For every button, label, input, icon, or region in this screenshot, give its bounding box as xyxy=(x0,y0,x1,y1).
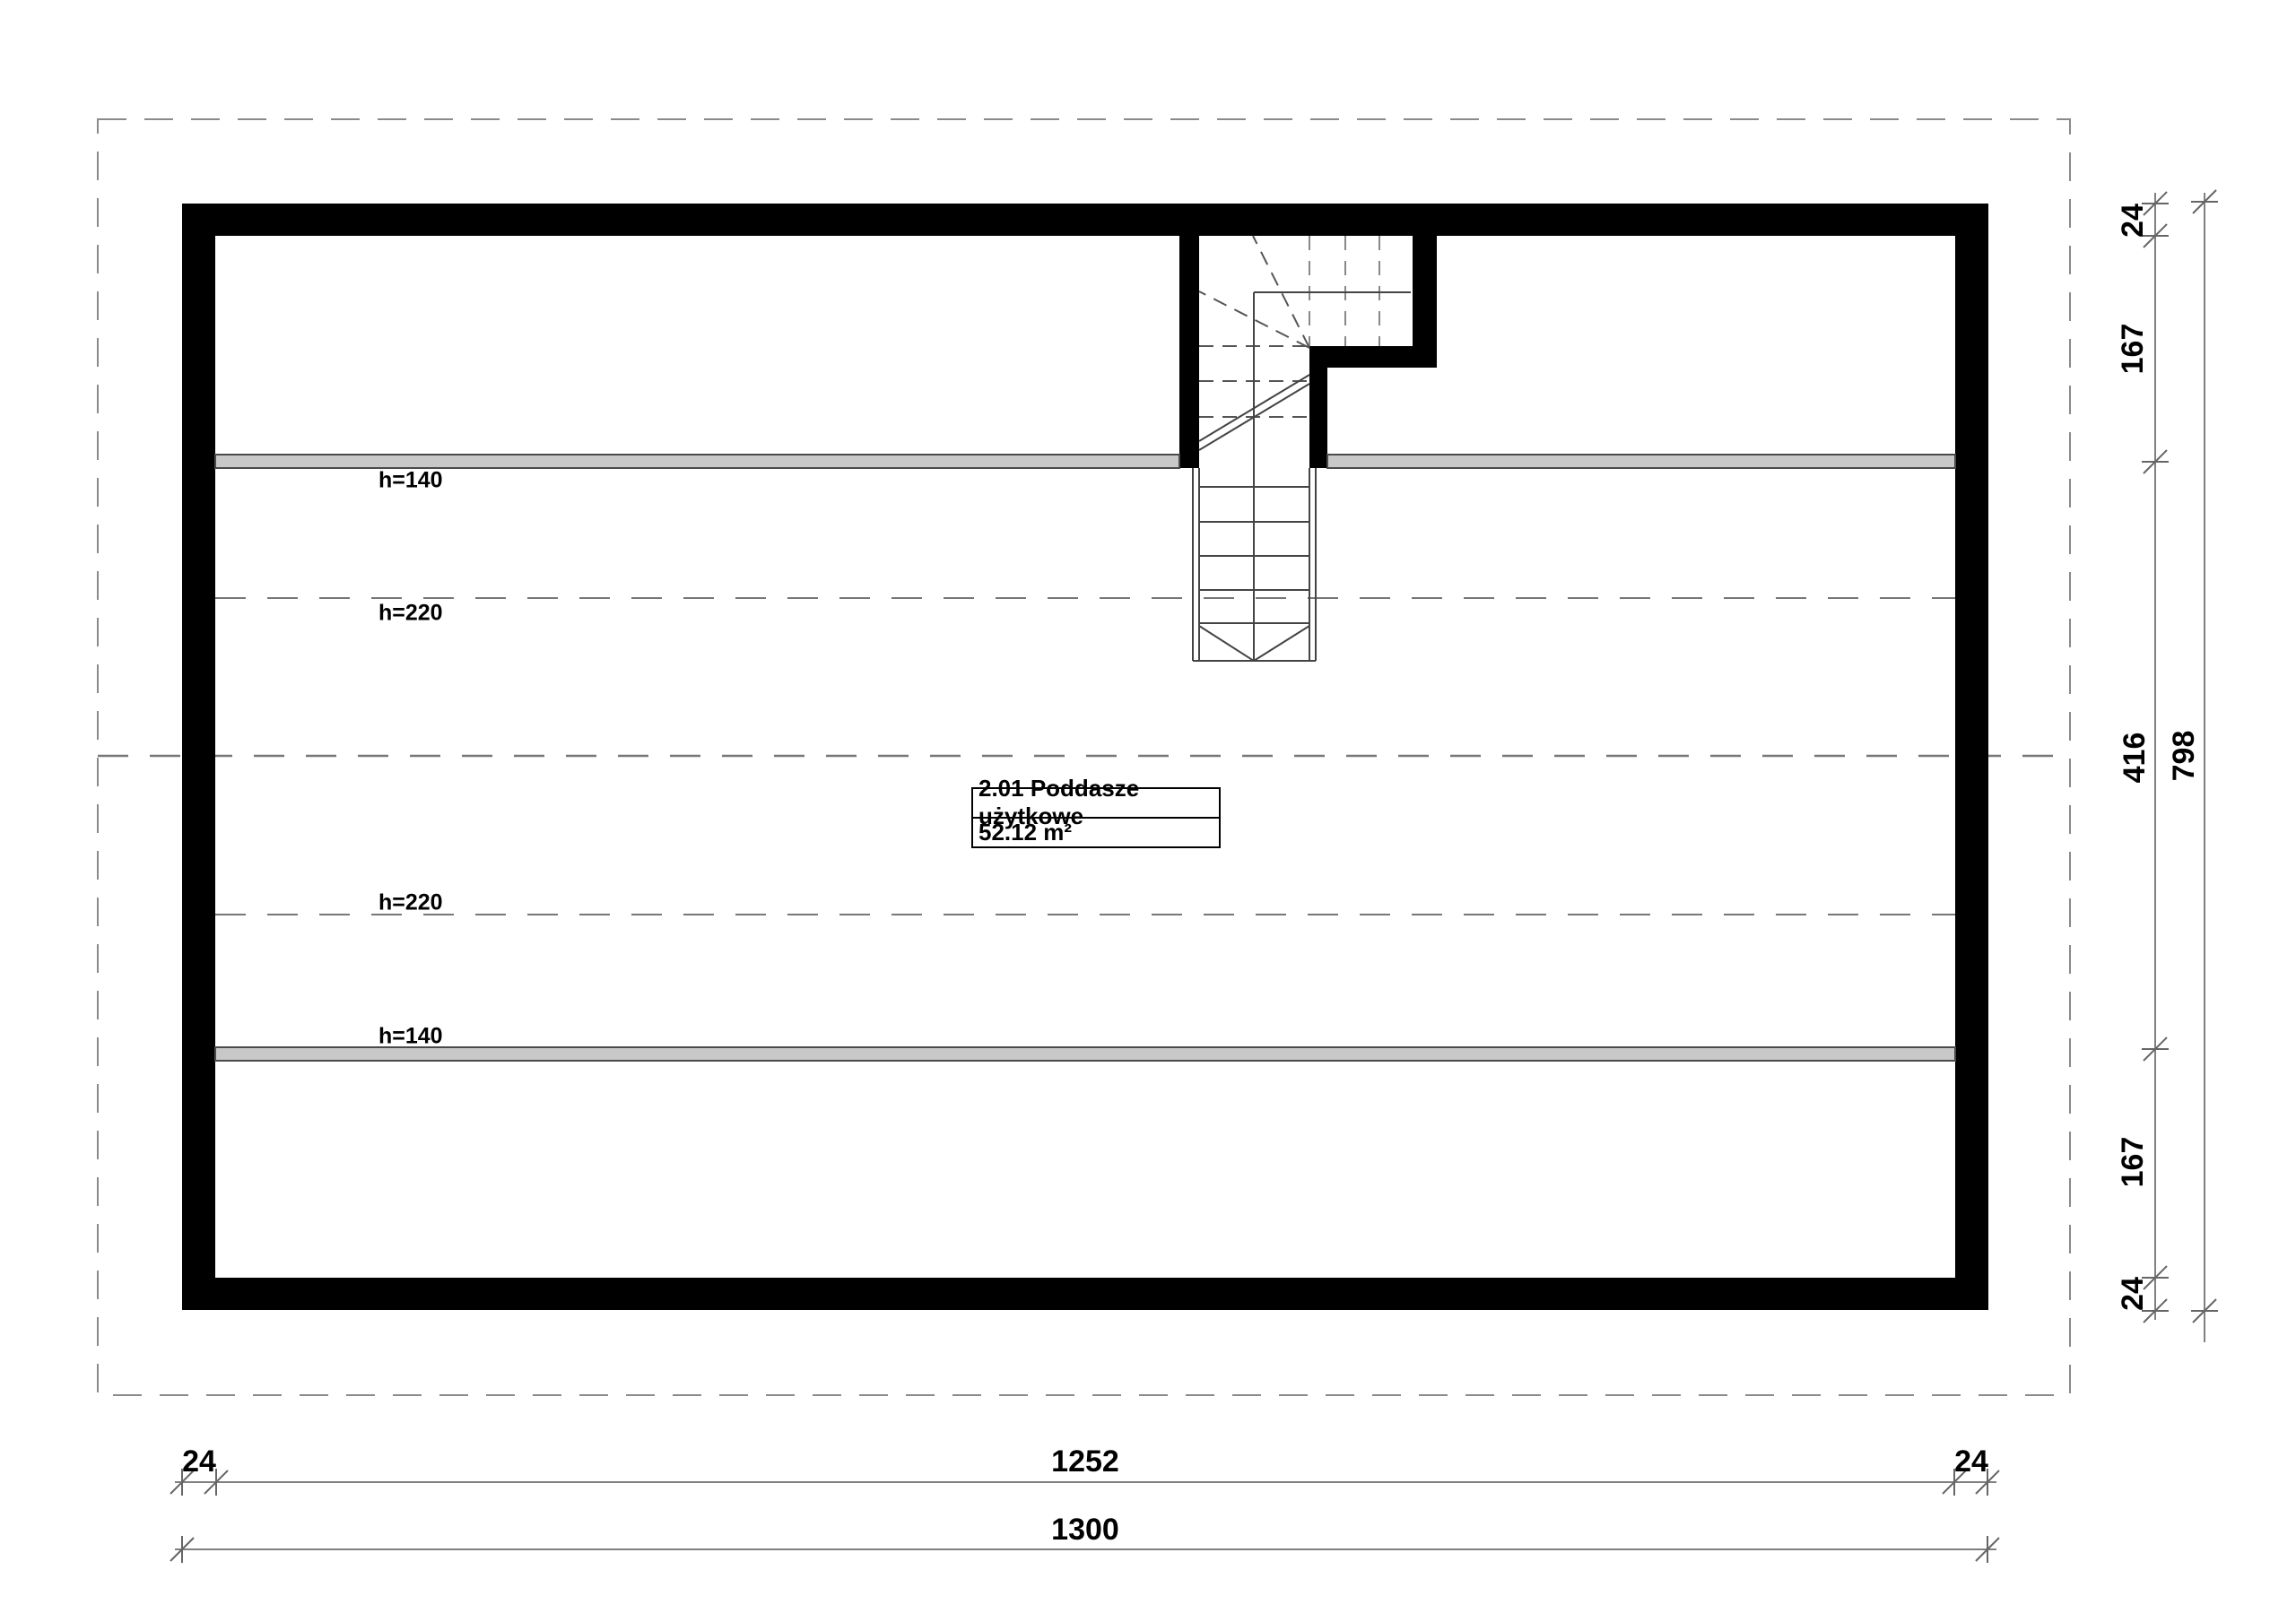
h140-label-bottom: h=140 xyxy=(378,1026,443,1048)
h220-label-top: h=220 xyxy=(378,603,443,625)
dim-bottom-interior: 1252 xyxy=(1051,1446,1119,1477)
staircase xyxy=(1193,236,1411,661)
dim-bottom-total: 1300 xyxy=(1051,1514,1119,1545)
stair-walls xyxy=(1179,236,1437,468)
dim-bottom-wall-left: 24 xyxy=(182,1446,216,1477)
roof-outline-dashed xyxy=(98,119,2070,1395)
stair-upper-treads-dashed xyxy=(1309,236,1379,346)
dim-right-zone-top: 167 xyxy=(2118,324,2148,375)
knee-wall-band-bottom xyxy=(215,1047,1955,1061)
dim-right-zone-middle: 416 xyxy=(2119,733,2150,784)
dim-right-wall-top: 24 xyxy=(2118,204,2148,238)
dim-right-zone-bottom: 167 xyxy=(2118,1137,2148,1188)
floor-plan-page: 2.01 Poddasze użytkowe 52.12 m² h=140 h=… xyxy=(0,0,2296,1622)
knee-wall-band-top xyxy=(215,455,1955,468)
room-label-box: 2.01 Poddasze użytkowe 52.12 m² xyxy=(971,787,1221,848)
room-name: 2.01 Poddasze użytkowe xyxy=(973,789,1219,817)
dim-bottom-wall-right: 24 xyxy=(1954,1446,1988,1477)
h140-label-top: h=140 xyxy=(378,470,443,492)
h220-label-bottom: h=220 xyxy=(378,892,443,915)
dim-right-wall-bottom: 24 xyxy=(2118,1277,2148,1311)
dim-right-total: 798 xyxy=(2169,731,2199,782)
